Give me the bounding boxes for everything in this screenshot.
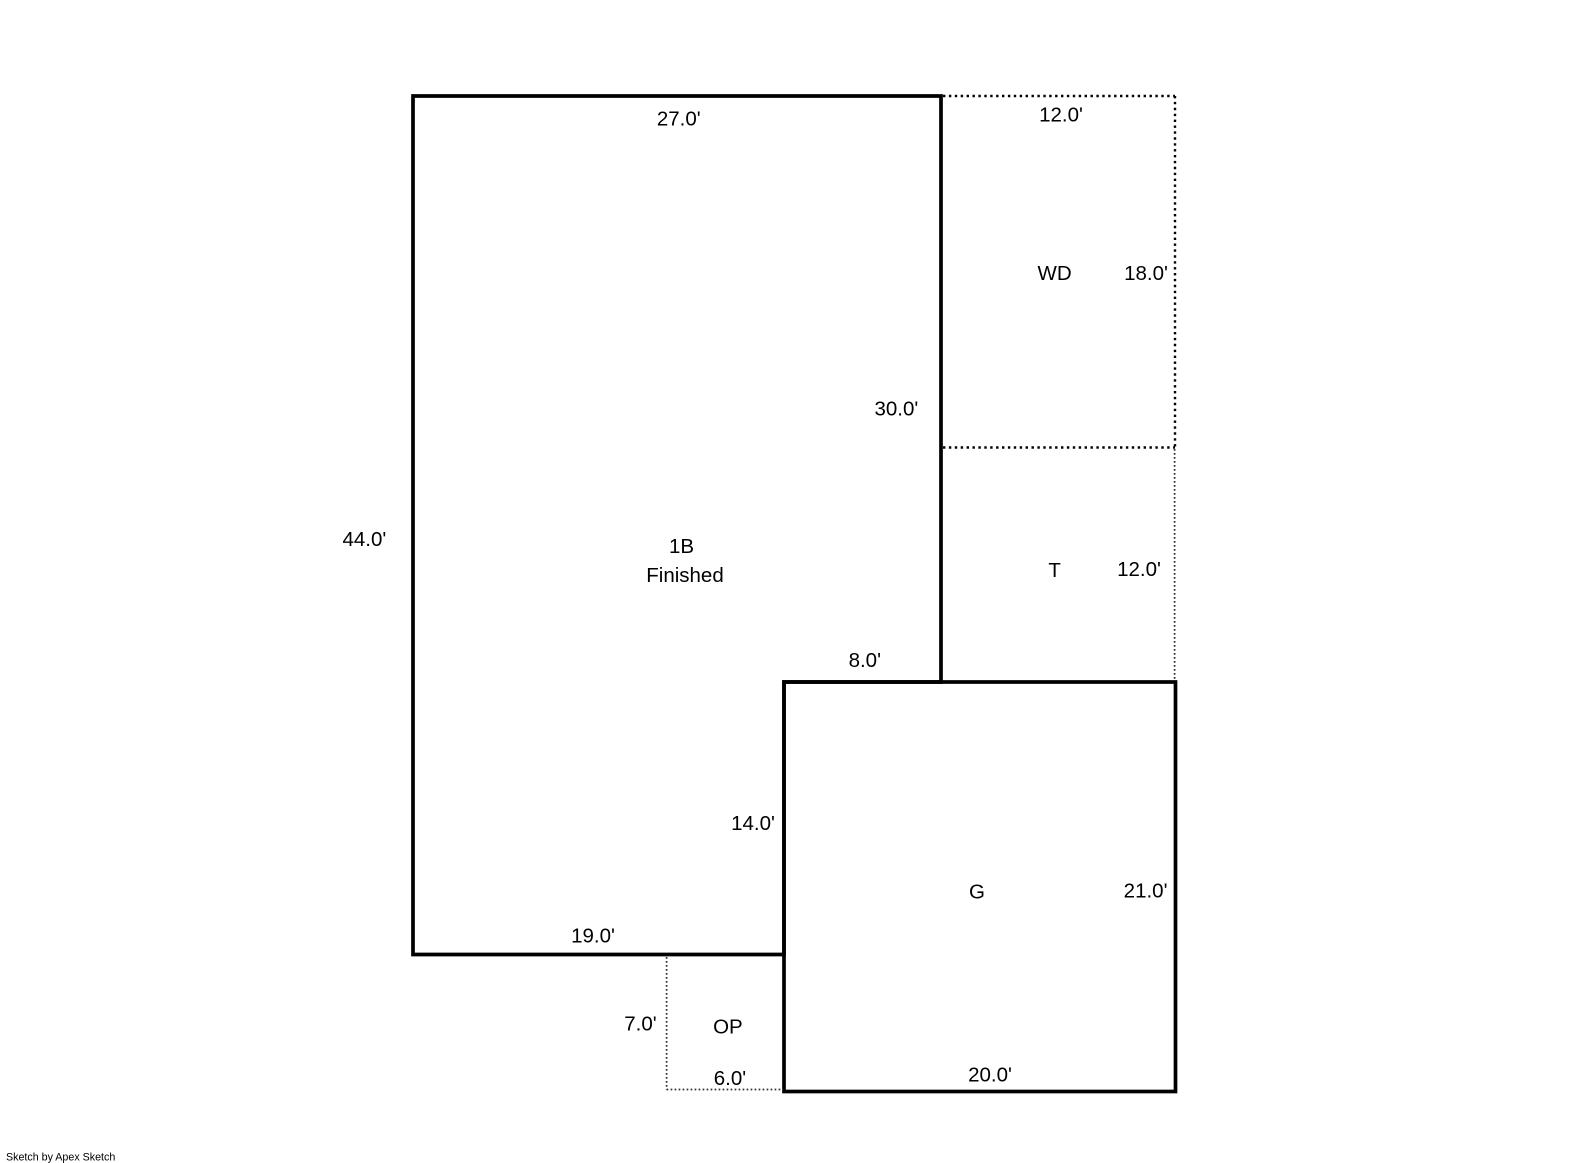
svg-text:8.0': 8.0'	[849, 649, 881, 672]
svg-text:21.0': 21.0'	[1124, 880, 1168, 903]
svg-text:12.0': 12.0'	[1117, 558, 1161, 581]
svg-text:WD: WD	[1038, 262, 1072, 285]
svg-text:44.0': 44.0'	[342, 528, 386, 551]
svg-text:27.0': 27.0'	[657, 108, 701, 131]
svg-text:Sketch by Apex Sketch: Sketch by Apex Sketch	[6, 1152, 115, 1163]
svg-text:1B: 1B	[669, 535, 694, 558]
svg-text:OP: OP	[713, 1016, 743, 1039]
svg-text:Finished: Finished	[646, 564, 724, 587]
svg-text:14.0': 14.0'	[731, 812, 775, 835]
svg-text:6.0': 6.0'	[714, 1067, 746, 1090]
svg-text:G: G	[969, 881, 985, 904]
svg-text:12.0': 12.0'	[1039, 104, 1083, 127]
svg-text:7.0': 7.0'	[624, 1013, 656, 1036]
svg-text:20.0': 20.0'	[968, 1064, 1012, 1087]
svg-text:T: T	[1048, 559, 1061, 582]
svg-text:19.0': 19.0'	[571, 925, 615, 948]
svg-text:30.0': 30.0'	[874, 398, 918, 421]
svg-text:18.0': 18.0'	[1124, 262, 1168, 285]
